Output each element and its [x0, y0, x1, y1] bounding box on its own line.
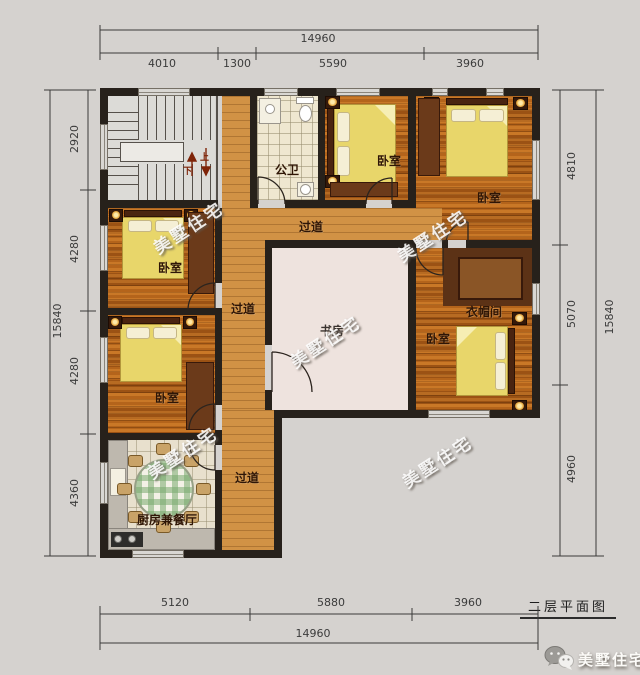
stair-flight-bottom	[138, 164, 215, 200]
bed-headboard	[327, 106, 334, 182]
dim-right-seg-1: 4810	[566, 141, 578, 191]
label-stairs-down: 下	[183, 168, 192, 177]
label-cloakroom: 衣帽间	[454, 305, 514, 319]
window	[100, 225, 108, 271]
dim-top-seg-4: 3960	[445, 58, 495, 70]
window	[132, 550, 184, 558]
dim-top-seg-1: 4010	[137, 58, 187, 70]
dim-top-seg-3: 5590	[308, 58, 358, 70]
label-hallway-mid: 过道	[219, 302, 267, 316]
dim-bottom-seg-2: 5880	[306, 597, 356, 609]
stair-landing	[120, 142, 184, 162]
wall-corridor-left-4	[215, 470, 222, 552]
stair-flight-top	[138, 96, 215, 140]
wall-exterior-right	[532, 88, 540, 418]
nightstand-lamp	[109, 209, 123, 222]
dim-left-seg-1: 2920	[69, 114, 81, 164]
label-bathroom: 公卫	[267, 163, 307, 177]
wall-bathroom-left	[250, 96, 257, 200]
nightstand-lamp	[513, 97, 528, 110]
wall-wing-right	[274, 410, 282, 558]
bed-headboard	[446, 98, 508, 105]
label-bedroom-left-upper: 卧室	[146, 261, 194, 275]
cloakroom-wardrobe	[458, 257, 523, 300]
window	[264, 88, 298, 96]
window	[432, 88, 448, 96]
dim-left-seg-4: 4360	[69, 468, 81, 518]
nightstand-lamp	[512, 312, 527, 325]
wall-corridor-left-2	[215, 310, 222, 405]
brand-logo-text: 美墅住宅	[578, 649, 640, 670]
wall-exterior-bottom-right-section	[274, 410, 540, 418]
window	[100, 124, 108, 170]
stair-railing	[216, 96, 218, 200]
bed-pillow	[495, 362, 506, 390]
label-hallway-horizontal: 过道	[287, 220, 335, 234]
dining-chair	[196, 483, 211, 495]
window	[532, 140, 540, 200]
plan-title: 二层平面图	[520, 596, 616, 619]
bed-pillow	[479, 109, 504, 122]
nightstand-lamp	[183, 316, 197, 329]
wechat-icon	[543, 644, 575, 672]
window	[428, 410, 490, 418]
dim-left-seg-3: 4280	[69, 346, 81, 396]
hallway-vertical-mid-floor	[222, 240, 265, 410]
bed-pillow	[128, 220, 152, 232]
window	[100, 462, 108, 504]
dim-right-total: 15840	[604, 292, 616, 342]
label-hallway-bottom: 过道	[223, 471, 271, 485]
bed-pillow	[451, 109, 476, 122]
dim-bottom-total: 14960	[283, 628, 343, 640]
toilet-tank	[296, 97, 314, 104]
wall-bedrooms-top-divider	[408, 96, 416, 208]
window	[336, 88, 380, 96]
bed-headboard	[122, 317, 180, 324]
wall-study-left-upper	[265, 240, 272, 345]
label-bedroom-top-right: 卧室	[465, 191, 513, 205]
dining-chair	[117, 483, 132, 495]
dim-left-total: 15840	[52, 296, 64, 346]
wall-left-bedrooms-divider	[100, 308, 222, 315]
bed-headboard	[508, 328, 515, 394]
label-bedroom-right-middle: 卧室	[414, 332, 462, 346]
dim-right-seg-3: 4960	[566, 444, 578, 494]
stove-burner	[114, 535, 122, 543]
wall-seg	[285, 200, 366, 208]
wall-study-left-lower	[265, 390, 272, 410]
label-bedroom-left-lower: 卧室	[143, 391, 191, 405]
dim-top-seg-2: 1300	[212, 58, 262, 70]
bed-pillow	[495, 332, 506, 360]
nightstand-lamp	[108, 316, 122, 329]
window	[100, 337, 108, 383]
wall-exterior-bottom-left-wing	[100, 550, 282, 558]
floor-plan-canvas: 公卫 卧室 卧室 卧室 卧室 卧室 衣帽间 书房 厨房兼餐厅 过道 过道 过道 …	[0, 0, 640, 675]
bed-pillow	[337, 112, 350, 142]
bed-pillow	[153, 327, 177, 339]
label-bedroom-top-middle: 卧室	[365, 154, 413, 168]
dining-chair	[128, 455, 143, 467]
hallway-strip-by-stairs	[222, 96, 250, 208]
bathroom-sink	[300, 184, 311, 195]
window	[532, 283, 540, 315]
shower-head	[265, 104, 275, 114]
bed-pillow	[126, 327, 150, 339]
label-kitchen-dining: 厨房兼餐厅	[119, 513, 215, 527]
wall-bedroom-tr-bottom	[466, 240, 540, 248]
dim-top-total: 14960	[288, 33, 348, 45]
bed-headboard	[124, 210, 182, 217]
dim-right-seg-2: 5070	[566, 289, 578, 339]
dim-bottom-seg-1: 5120	[150, 597, 200, 609]
wall-bathroom-right	[318, 96, 325, 200]
wall-study-bedroom-divider	[408, 248, 416, 410]
window	[138, 88, 190, 96]
window	[486, 88, 504, 96]
toilet-bowl	[299, 105, 312, 122]
wardrobe	[330, 182, 398, 197]
nightstand-lamp	[325, 96, 340, 109]
label-stairs-up: 上	[200, 154, 209, 163]
stove-burner	[128, 535, 136, 543]
wall-seg	[250, 200, 258, 208]
dim-left-seg-2: 4280	[69, 224, 81, 274]
dim-bottom-seg-3: 3960	[443, 597, 493, 609]
watermark: 美墅住宅	[397, 428, 478, 493]
bed-pillow	[337, 146, 350, 176]
wardrobe	[418, 98, 440, 176]
